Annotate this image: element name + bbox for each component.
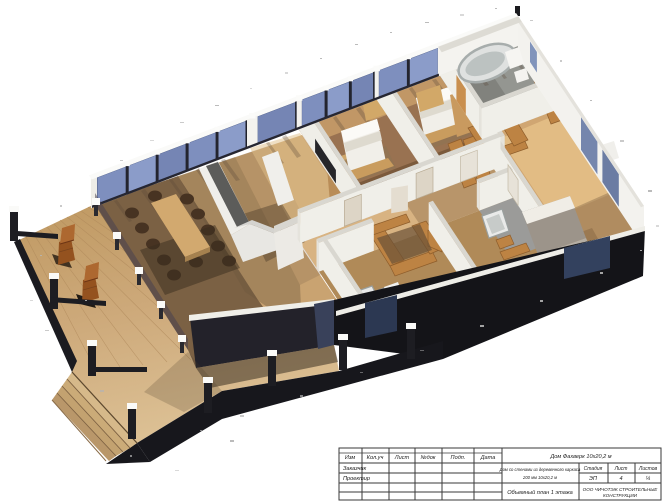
svg-text:Лист: Лист xyxy=(614,466,628,472)
svg-text:4: 4 xyxy=(619,476,622,482)
svg-text:Кол.уч: Кол.уч xyxy=(367,455,384,461)
svg-text:¼: ¼ xyxy=(646,476,651,482)
svg-text:Стадия: Стадия xyxy=(584,466,603,472)
svg-text:Проектир: Проектир xyxy=(343,476,370,482)
svg-text:Заказчик: Заказчик xyxy=(343,466,366,472)
svg-text:ЭП: ЭП xyxy=(589,476,598,482)
svg-text:Лист: Лист xyxy=(394,455,410,461)
svg-text:200 мм 10х20,2 м: 200 мм 10х20,2 м xyxy=(522,475,557,480)
svg-text:Изм: Изм xyxy=(345,455,356,461)
svg-text:КОНСТРУКЦИИ: КОНСТРУКЦИИ xyxy=(603,493,638,498)
svg-text:Листов: Листов xyxy=(638,466,658,472)
svg-text:Дом Фахверк 10х20,2 м: Дом Фахверк 10х20,2 м xyxy=(549,454,611,460)
svg-text:Дата: Дата xyxy=(480,455,496,461)
svg-text:Объемный план 1 этажа: Объемный план 1 этажа xyxy=(507,489,573,496)
svg-text:№док: №док xyxy=(421,455,436,461)
svg-text:ООО ЧИЧОТЭЖ СТРОИТЕЛЬНЫЕ: ООО ЧИЧОТЭЖ СТРОИТЕЛЬНЫЕ xyxy=(583,487,659,492)
svg-text:Подп.: Подп. xyxy=(451,455,466,461)
svg-text:Дом со стенами из деревянного: Дом со стенами из деревянного каркаса xyxy=(499,467,581,472)
